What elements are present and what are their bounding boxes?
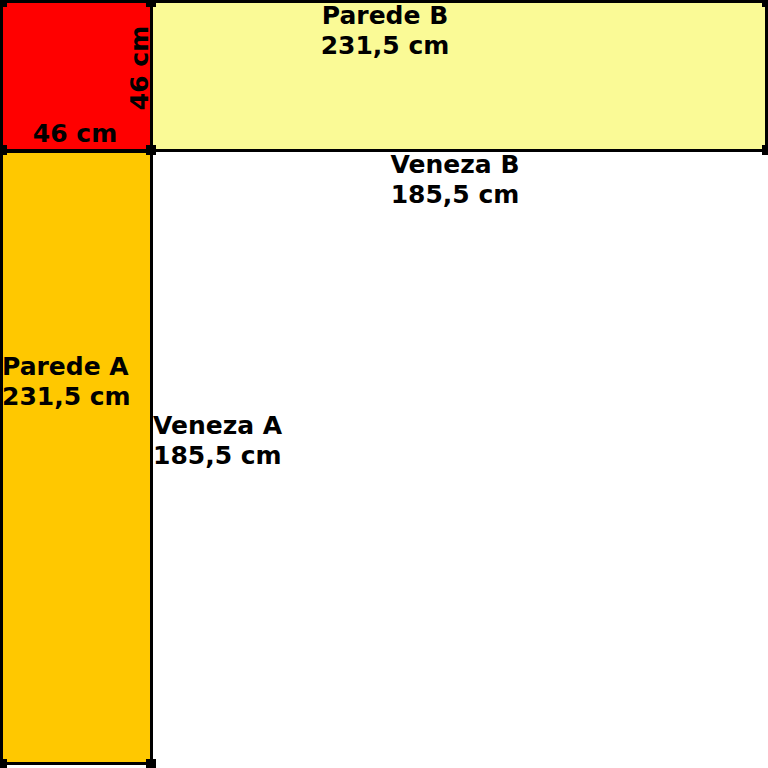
vertex-point: [0, 145, 7, 155]
vertex-point: [146, 759, 156, 768]
parede-a-length: 231,5 cm: [2, 382, 114, 412]
veneza-a-label: Veneza A 185,5 cm: [153, 411, 282, 471]
vertex-point: [146, 145, 156, 155]
corner-height-label: 46 cm: [125, 0, 155, 138]
vertex-point: [762, 145, 768, 155]
parede-b-label: Parede B 231,5 cm: [300, 1, 470, 61]
parede-a-label: Parede A 231,5 cm: [2, 352, 114, 412]
veneza-a-length: 185,5 cm: [153, 441, 282, 471]
veneza-a-title: Veneza A: [153, 411, 282, 441]
vertex-point: [0, 759, 7, 768]
parede-a-title: Parede A: [2, 352, 114, 382]
geometry-diagram: Parede B 231,5 cm Veneza B 185,5 cm Pare…: [0, 0, 768, 768]
vertex-point: [0, 0, 7, 7]
veneza-b-length: 185,5 cm: [370, 180, 540, 210]
veneza-b-title: Veneza B: [370, 150, 540, 180]
vertex-point: [762, 0, 768, 7]
parede-b-length: 231,5 cm: [300, 31, 470, 61]
parede-b-title: Parede B: [300, 1, 470, 31]
parede-a-rectangle: [0, 150, 153, 765]
corner-width-label: 46 cm: [25, 119, 125, 149]
veneza-b-label: Veneza B 185,5 cm: [370, 150, 540, 210]
